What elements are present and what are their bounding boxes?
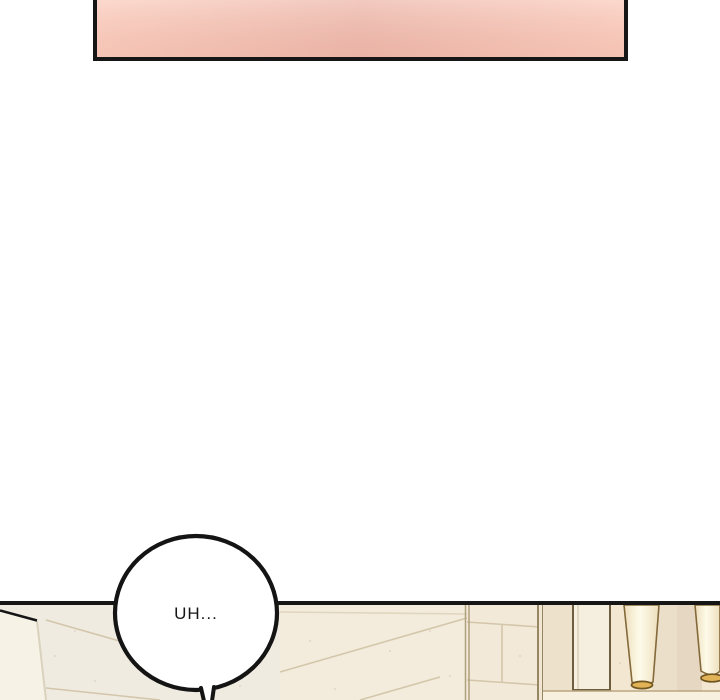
wall-warm-tint	[280, 605, 467, 700]
lamp-rim-1	[632, 681, 653, 688]
speech-bubble-text: UH...	[146, 604, 246, 624]
ledge	[543, 691, 720, 700]
frame-fill	[573, 605, 610, 691]
comic-page: UH...	[0, 0, 720, 700]
speech-bubble-tail	[201, 681, 214, 700]
wall-mid	[467, 605, 540, 700]
tan-strip	[543, 605, 573, 700]
top-panel	[93, 0, 628, 61]
top-panel-shading	[97, 0, 624, 57]
lamp-rim-2	[701, 674, 720, 682]
